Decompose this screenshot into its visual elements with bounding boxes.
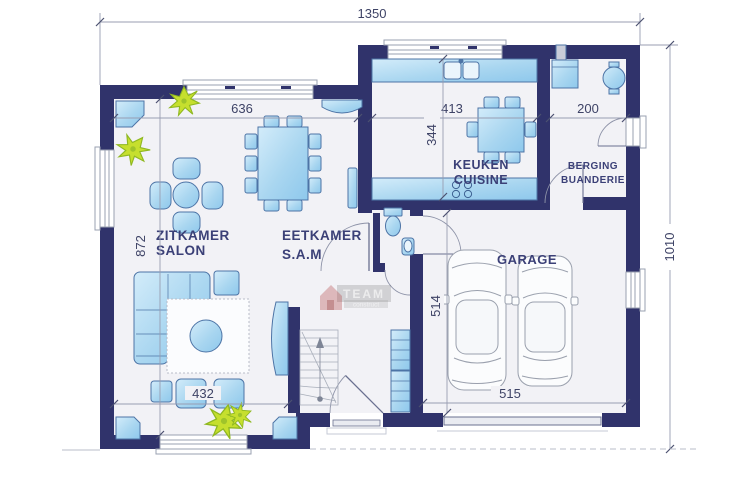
watermark-logo: TEAM construct [320,285,391,310]
corner-cabinet-bottom-left [116,417,140,439]
radiator [348,168,357,208]
dim-total-height: 1010 [640,41,678,453]
room-label-storage: BERGING [568,161,618,172]
svg-text:344: 344 [424,124,439,146]
pouf [151,381,172,402]
room-label-kitchen: KEUKEN [453,158,509,172]
svg-text:514: 514 [428,295,443,317]
svg-text:200: 200 [577,101,599,116]
floor-plan-page: TEAM construct ZITKAMER SALON EETKAMER S… [0,0,736,491]
room-label-dining-2: S.A.M [282,247,322,262]
room-label-storage-2: BUANDERIE [561,175,625,186]
floor-plan-svg: TEAM construct ZITKAMER SALON EETKAMER S… [0,0,736,491]
room-label-living: ZITKAMER [156,228,230,243]
room-label-kitchen-2: CUISINE [454,173,508,187]
corner-cabinet-bottom-right [273,417,297,439]
window-shutter-mark [430,46,439,49]
garage-door [437,413,608,431]
car-left [442,250,512,390]
svg-text:432: 432 [192,386,214,401]
room-label-dining: EETKAMER [282,228,362,243]
toilet [384,208,402,236]
svg-text:1010: 1010 [662,233,677,262]
vent-duct [556,45,566,60]
boiler [603,67,625,89]
front-door [327,413,386,434]
room-label-garage: GARAGE [497,252,557,267]
window-shutter-mark [468,46,477,49]
wc-sink [402,238,414,255]
svg-text:413: 413 [441,101,463,116]
dresser [272,302,289,375]
window-shutter-mark [225,86,235,89]
room-label-living-2: SALON [156,243,206,258]
car-right [512,256,578,386]
svg-text:872: 872 [133,235,148,257]
pouf [214,271,239,295]
shelving-unit [391,330,410,412]
svg-text:515: 515 [499,386,521,401]
svg-text:construct: construct [353,302,380,309]
kitchen-sink [444,59,479,79]
svg-text:636: 636 [231,101,253,116]
svg-text:TEAM: TEAM [343,287,385,301]
washing-machine [552,60,578,88]
window-shutter-mark [281,86,291,89]
svg-text:1350: 1350 [358,6,387,21]
coffee-table [190,320,222,352]
